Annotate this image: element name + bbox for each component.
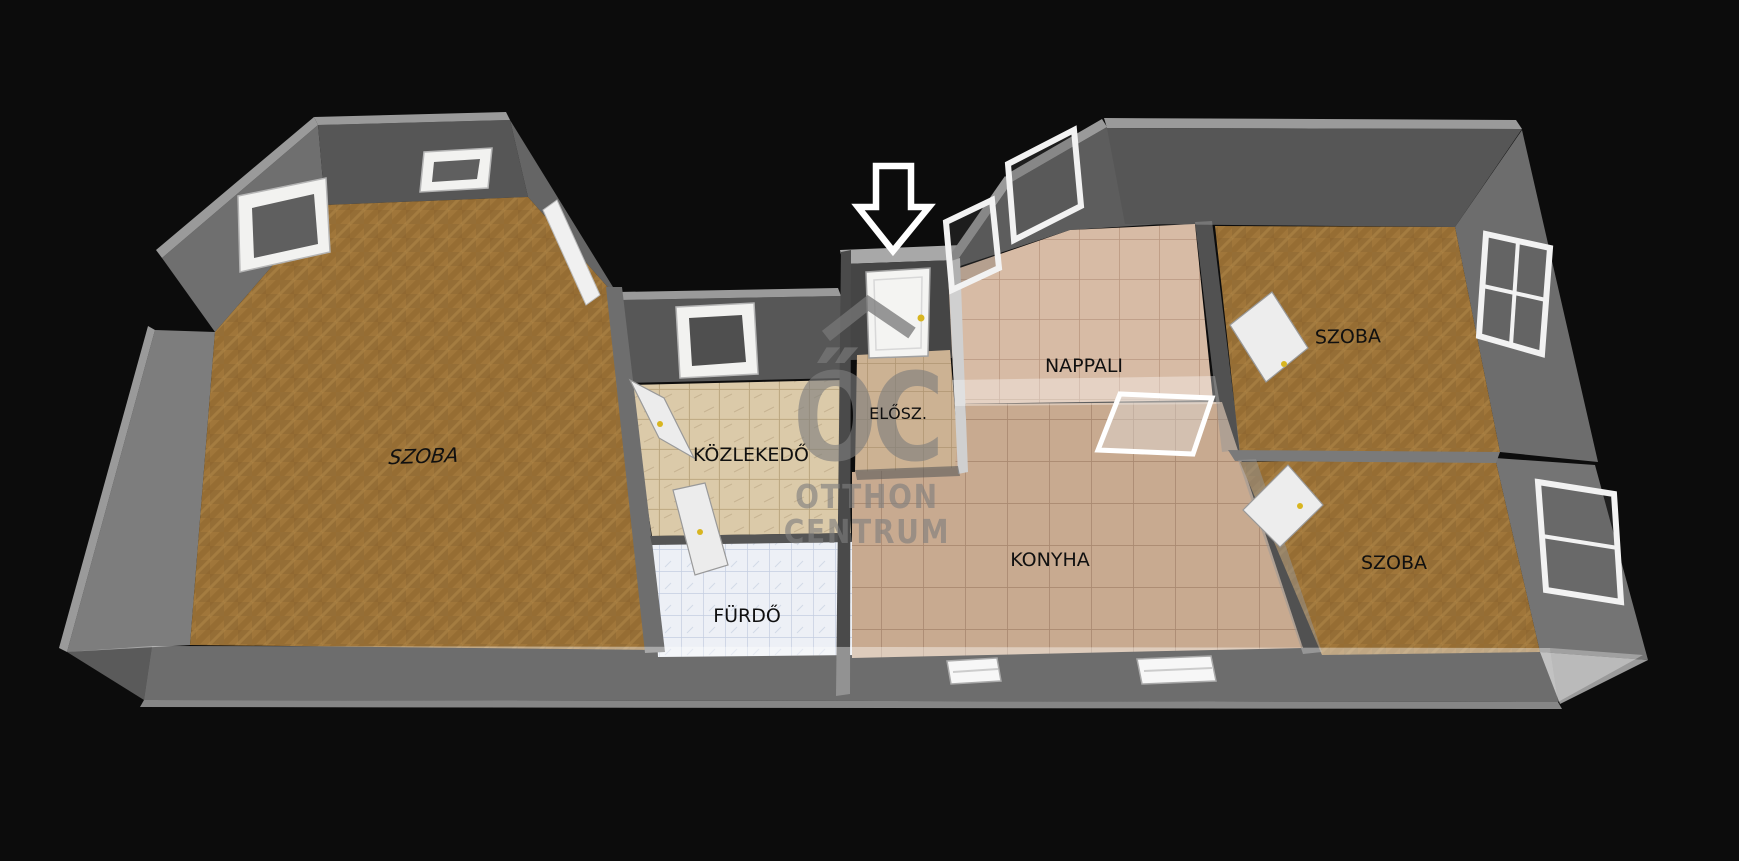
window-konyha-front-1 bbox=[947, 658, 1001, 684]
passage-nappali-konyha bbox=[1098, 394, 1212, 454]
room-label-konyha: KONYHA bbox=[1010, 549, 1089, 571]
door-handle bbox=[657, 421, 663, 427]
door-handle bbox=[918, 315, 925, 322]
room-label-szoba-left: SZOBA bbox=[388, 443, 460, 469]
wall-tr-top-strip bbox=[1104, 118, 1522, 129]
floorplan-svg: ŐC OTTHON CENTRUM SZOBA KÖZLEKEDŐ FÜRDŐ … bbox=[0, 0, 1739, 861]
door-handle bbox=[697, 529, 703, 535]
window-konyha-front-2 bbox=[1137, 656, 1216, 684]
room-label-szoba-top-right: SZOBA bbox=[1315, 325, 1381, 348]
room-label-elosz: ELŐSZ. bbox=[869, 403, 927, 423]
floor-furdo bbox=[652, 541, 857, 657]
room-label-kozlekedo: KÖZLEKEDŐ bbox=[693, 442, 809, 466]
window-tr-east bbox=[1479, 234, 1550, 354]
window-br-east bbox=[1538, 482, 1621, 602]
window-corridor-north bbox=[676, 303, 758, 378]
front-wall-band bbox=[144, 646, 1558, 702]
floorplan-scene: ŐC OTTHON CENTRUM SZOBA KÖZLEKEDŐ FÜRDŐ … bbox=[0, 0, 1739, 861]
front-wall-right-bevel bbox=[1550, 648, 1643, 702]
wall-tr-top bbox=[1107, 128, 1522, 227]
door-handle bbox=[1297, 503, 1303, 509]
door-handle bbox=[1281, 361, 1287, 367]
room-label-szoba-bottom-right: SZOBA bbox=[1361, 552, 1427, 574]
entrance-arrow bbox=[858, 166, 929, 251]
watermark-line1: OTTHON bbox=[795, 479, 939, 517]
room-label-furdo: FÜRDŐ bbox=[713, 603, 781, 627]
front-wall-left-bevel bbox=[67, 646, 152, 700]
watermark-line2: CENTRUM bbox=[784, 514, 950, 552]
front-glass-walls bbox=[67, 646, 1643, 709]
wall-right-rooms-divider bbox=[1228, 450, 1500, 463]
window-left-top bbox=[420, 148, 492, 192]
room-label-nappali: NAPPALI bbox=[1045, 355, 1123, 377]
